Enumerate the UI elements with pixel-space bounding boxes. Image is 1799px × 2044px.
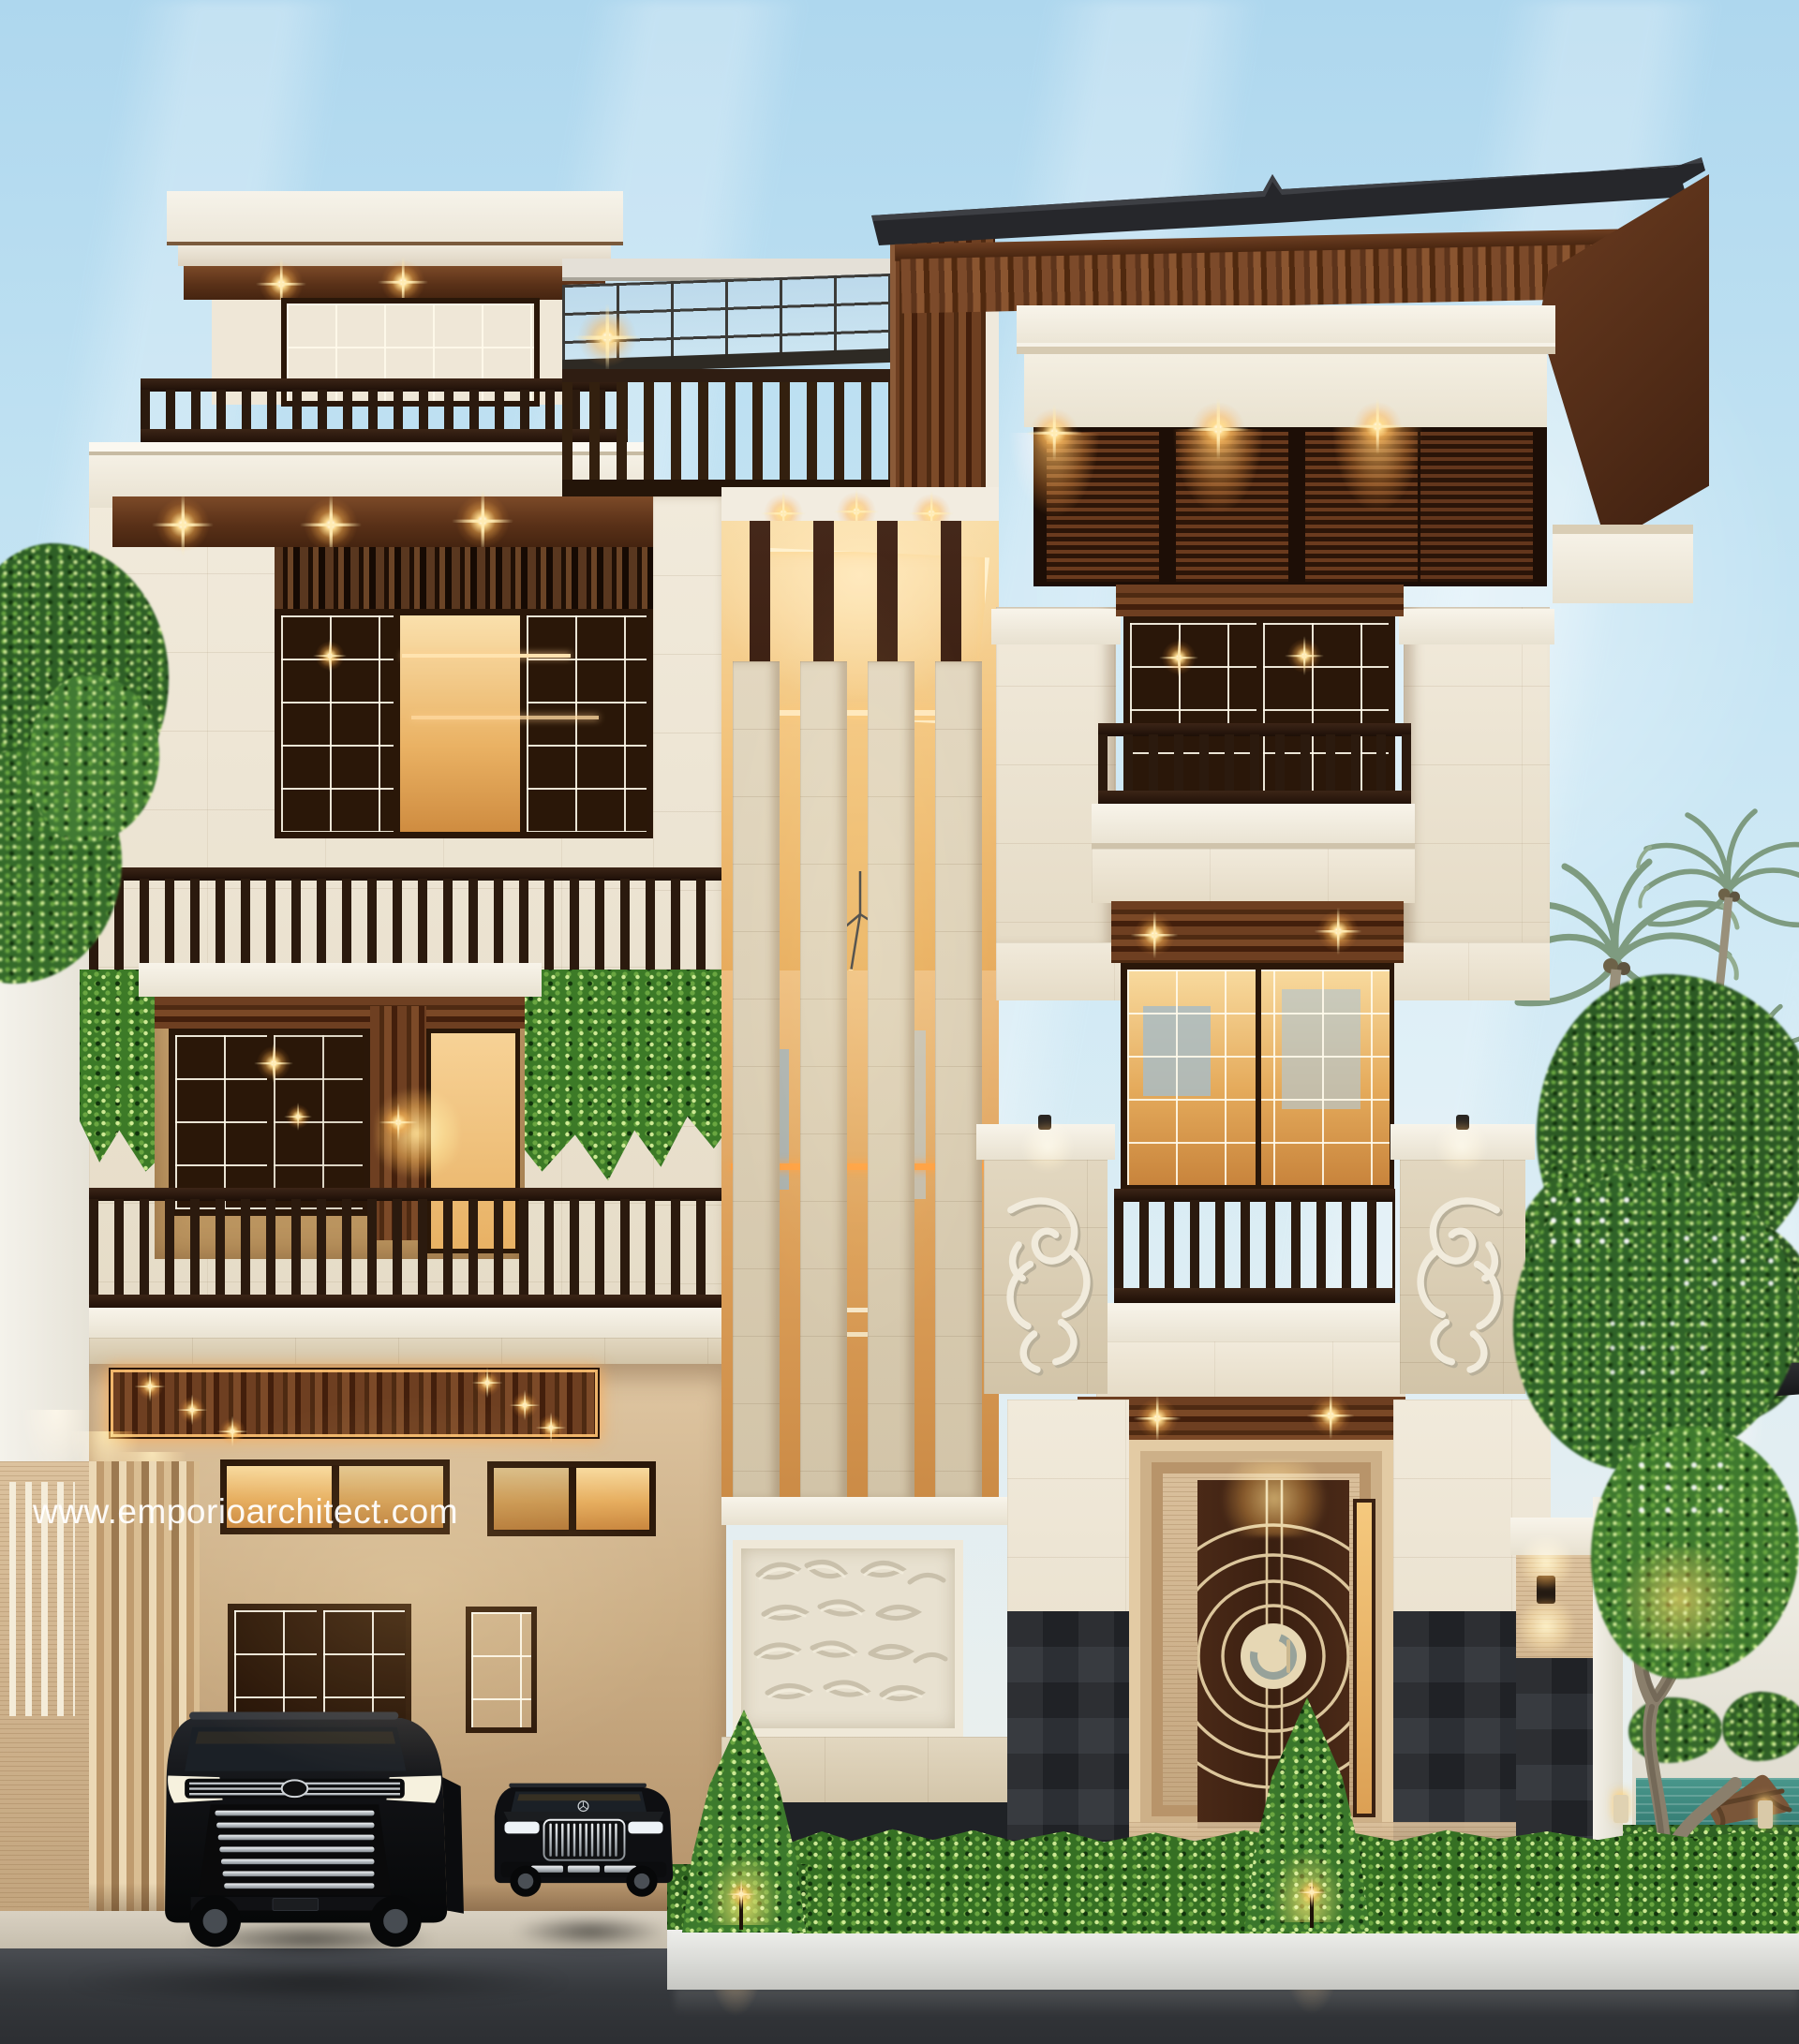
levelb-window — [1121, 963, 1394, 1192]
floor2-balcony-railing — [89, 1188, 731, 1310]
decorative-shape — [603, 1824, 605, 1857]
decorative-shape — [411, 716, 599, 719]
decorative-shape — [764, 1602, 917, 1619]
decorative-shape — [273, 1899, 319, 1911]
decorative-shape — [758, 1562, 944, 1582]
decorative-shape — [509, 1784, 647, 1787]
decorative-shape — [518, 1874, 534, 1889]
carport-header — [89, 1338, 726, 1364]
tower-balcony-slab — [1092, 804, 1415, 849]
decorative-shape — [1176, 432, 1288, 582]
carport-ceiling-panel — [111, 1370, 598, 1437]
carved-relief-panel — [733, 1540, 963, 1737]
atrium-stone-fin — [800, 661, 847, 1499]
villa-exterior-render: www.emporioarchitect.com — [0, 0, 1799, 2044]
spike-light-stem — [1310, 1887, 1314, 1928]
decorative-shape — [549, 1824, 551, 1857]
decorative-shape — [175, 1035, 267, 1209]
decorative-shape — [1047, 432, 1159, 582]
decorative-shape — [758, 1566, 921, 1698]
decorative-shape — [576, 1468, 649, 1530]
decorative-shape — [609, 1824, 611, 1857]
carport-transom-window — [487, 1461, 656, 1536]
decorative-shape — [216, 1823, 374, 1829]
atrium-header — [721, 487, 999, 524]
floor2-fascia — [89, 1308, 731, 1340]
penthouse-railing — [141, 378, 628, 444]
decorative-shape — [281, 615, 394, 832]
decorative-shape — [758, 1566, 921, 1698]
balcony-header — [1116, 585, 1404, 616]
decorative-shape — [141, 390, 628, 431]
decorative-shape — [400, 615, 520, 832]
louver-bay — [1033, 427, 1547, 586]
decorative-shape — [1610, 1548, 1750, 1651]
luxury-mpv-black — [145, 1686, 464, 1948]
tower-balcony-railing — [1098, 723, 1411, 806]
balinese-carving — [988, 1165, 1104, 1386]
decorative-shape — [585, 1824, 587, 1857]
decorative-shape — [1305, 432, 1418, 582]
gate-sconce — [1537, 1576, 1555, 1604]
decorative-shape — [527, 615, 647, 832]
spike-light-stem — [739, 1888, 743, 1930]
decorative-shape — [591, 1824, 593, 1857]
entry-wainscot-left — [1007, 1611, 1129, 1840]
decorative-shape — [402, 654, 571, 658]
decorative-shape — [1098, 734, 1411, 792]
decorative-shape — [628, 1822, 662, 1834]
decorative-shape — [1286, 1639, 1290, 1673]
decorative-shape — [1259, 1810, 1357, 1922]
decorative-shape — [218, 1835, 375, 1841]
decorative-shape — [219, 1847, 374, 1853]
tower-pillar-cap — [1399, 609, 1554, 644]
entry-sidelight — [1353, 1499, 1375, 1817]
decorative-shape — [155, 997, 525, 1029]
decorative-shape — [573, 1824, 575, 1857]
decorative-shape — [1628, 1454, 1741, 1529]
decorative-shape — [189, 1712, 398, 1720]
decorative-shape — [1673, 1227, 1776, 1302]
floor3-glass-doors — [275, 609, 653, 838]
decorative-shape — [216, 1811, 375, 1816]
decorative-shape — [567, 1824, 569, 1857]
decorative-shape — [1541, 1190, 1644, 1255]
floor3-soffit — [112, 496, 726, 547]
decorative-shape — [1456, 1115, 1469, 1130]
decorative-shape — [224, 1883, 374, 1888]
decorative-shape — [1256, 970, 1261, 1185]
floor3-slat-screen — [275, 547, 653, 609]
floral-relief-pattern — [741, 1548, 955, 1728]
decorative-shape — [615, 1824, 617, 1857]
decorative-shape — [675, 1988, 1799, 2016]
bollard-light — [1758, 1800, 1773, 1829]
decorative-shape — [517, 1794, 641, 1800]
decorative-shape — [634, 1874, 650, 1889]
decorative-shape — [1010, 1201, 1087, 1370]
tower-spandrel — [1092, 849, 1415, 903]
decorative-shape — [568, 1866, 600, 1873]
decorative-shape — [1114, 1200, 1395, 1290]
tower-band — [1024, 354, 1547, 427]
penthouse-fascia — [178, 245, 611, 266]
atrium-stone-fin — [935, 661, 982, 1499]
decorative-shape — [1420, 1201, 1497, 1370]
atrium-stone-fin — [733, 661, 780, 1499]
levelb-railing — [1114, 1189, 1395, 1303]
decorative-shape — [383, 1909, 408, 1933]
decorative-shape — [223, 1871, 375, 1876]
decorative-shape — [494, 1468, 569, 1530]
decorative-shape — [274, 1035, 363, 1209]
decorative-shape — [203, 1909, 228, 1933]
tower-pillar-cap — [991, 609, 1121, 644]
decorative-shape — [556, 1824, 558, 1857]
floor2-lintel — [139, 963, 542, 997]
decorative-shape — [561, 1824, 563, 1857]
decorative-shape — [282, 1780, 308, 1797]
levelb-slab — [1096, 1303, 1405, 1344]
tower-pillar-right — [1404, 607, 1550, 948]
decorative-shape — [505, 1822, 540, 1834]
decorative-shape — [579, 1824, 581, 1857]
decorative-shape — [756, 1562, 945, 1698]
decorative-shape — [597, 1824, 599, 1857]
decorative-shape — [195, 1732, 395, 1744]
luxury-suv-black — [485, 1714, 682, 1944]
decorative-shape — [1038, 1115, 1051, 1130]
atrium-base-beam — [721, 1497, 1012, 1525]
atrium-stone-fin — [868, 661, 914, 1499]
decorative-shape — [89, 1199, 731, 1296]
watermark: www.emporioarchitect.com — [33, 1492, 458, 1532]
tower-cornice — [1017, 305, 1555, 354]
decorative-shape — [56, 1967, 581, 2014]
penthouse-soffit — [184, 266, 605, 300]
balinese-carving — [1404, 1165, 1520, 1386]
decorative-shape — [1114, 1288, 1395, 1303]
decorative-shape — [695, 1813, 793, 1925]
decorative-shape — [562, 382, 892, 480]
decorative-shape — [221, 1859, 374, 1865]
decorative-shape — [1420, 432, 1533, 582]
decorative-shape — [1598, 1311, 1710, 1377]
levelb-ceiling — [1111, 901, 1404, 963]
bollard-light — [1613, 1795, 1628, 1823]
levelb-spandrel — [1096, 1341, 1405, 1400]
carved-pillar-right — [1394, 1120, 1531, 1394]
terrace-parapet — [1553, 525, 1693, 603]
carved-pillar-left — [980, 1120, 1111, 1394]
decorative-shape — [562, 369, 892, 382]
penthouse-roof — [167, 191, 623, 245]
